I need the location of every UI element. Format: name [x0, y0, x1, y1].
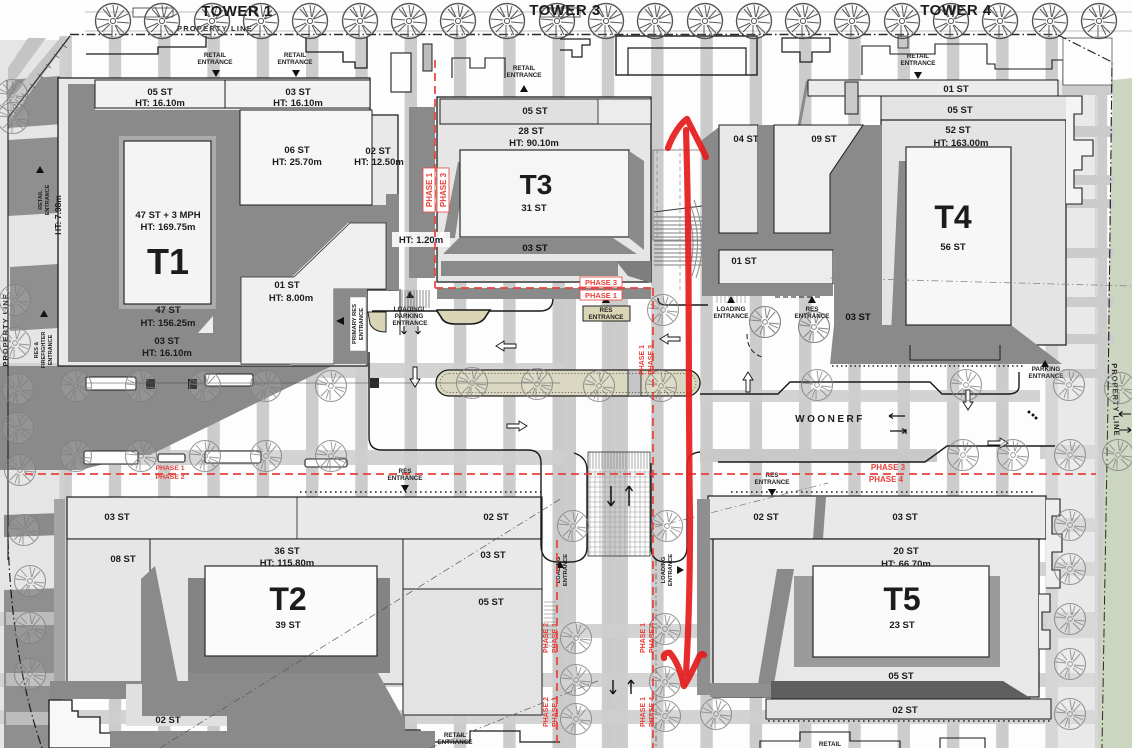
- svg-text:56 ST: 56 ST: [940, 242, 966, 253]
- svg-text:RETAIL: RETAIL: [284, 52, 306, 59]
- svg-text:02 ST: 02 ST: [155, 715, 181, 726]
- svg-text:08 ST: 08 ST: [110, 554, 136, 565]
- svg-text:ENTRANCE: ENTRANCE: [45, 184, 51, 215]
- svg-text:HT: 8.00m: HT: 8.00m: [269, 293, 313, 304]
- svg-text:WOONERF: WOONERF: [795, 414, 865, 425]
- svg-text:ENTRANCE: ENTRANCE: [563, 554, 569, 586]
- svg-text:ENTRANCE: ENTRANCE: [198, 59, 233, 66]
- svg-text:05 ST: 05 ST: [888, 671, 914, 682]
- svg-text:02 ST: 02 ST: [365, 146, 391, 157]
- svg-text:ENTRANCE: ENTRANCE: [393, 320, 428, 327]
- svg-text:39 ST: 39 ST: [275, 620, 301, 631]
- svg-text:PHASE 3: PHASE 3: [439, 172, 448, 207]
- svg-text:RES: RES: [600, 307, 613, 314]
- svg-text:52 ST: 52 ST: [945, 125, 971, 136]
- svg-text:ENTRANCE: ENTRANCE: [901, 60, 936, 67]
- svg-text:ENTRANCE: ENTRANCE: [795, 313, 830, 320]
- svg-text:01 ST: 01 ST: [943, 84, 969, 95]
- svg-text:05 ST: 05 ST: [522, 106, 548, 117]
- svg-text:RETAIL: RETAIL: [819, 741, 841, 748]
- svg-text:28 ST: 28 ST: [518, 126, 544, 137]
- svg-text:HT: 7.98m: HT: 7.98m: [53, 195, 63, 235]
- svg-text:HT: 1.20m: HT: 1.20m: [399, 235, 443, 246]
- svg-text:HT: 12.50m: HT: 12.50m: [354, 157, 404, 168]
- svg-text:HT: 156.25m: HT: 156.25m: [141, 318, 196, 329]
- svg-text:RETAIL: RETAIL: [444, 732, 466, 739]
- svg-text:03 ST: 03 ST: [285, 87, 311, 98]
- svg-text:ENTRANCE: ENTRANCE: [48, 334, 54, 365]
- svg-text:02 ST: 02 ST: [483, 512, 509, 523]
- svg-text:06 ST: 06 ST: [284, 145, 310, 156]
- svg-text:RES &: RES &: [34, 342, 40, 359]
- svg-text:PHASE 2: PHASE 2: [155, 474, 184, 481]
- svg-text:20 ST: 20 ST: [893, 546, 919, 557]
- svg-text:FIREFIGHTER: FIREFIGHTER: [41, 332, 47, 369]
- svg-text:03 ST: 03 ST: [892, 512, 918, 523]
- svg-text:RETAIL: RETAIL: [513, 65, 535, 72]
- svg-text:HT: 169.75m: HT: 169.75m: [141, 222, 196, 233]
- svg-text:T3: T3: [520, 169, 553, 200]
- svg-text:03 ST: 03 ST: [104, 512, 130, 523]
- svg-text:PARKING: PARKING: [395, 313, 424, 320]
- svg-text:PHASE 1: PHASE 1: [552, 697, 559, 727]
- svg-text:TOWER 1: TOWER 1: [201, 3, 273, 20]
- svg-text:09 ST: 09 ST: [811, 134, 837, 145]
- svg-text:T2: T2: [269, 581, 306, 617]
- svg-text:PHASE 4: PHASE 4: [649, 697, 656, 727]
- svg-text:PARKING: PARKING: [1032, 366, 1061, 373]
- svg-text:03 ST: 03 ST: [154, 336, 180, 347]
- svg-text:01 ST: 01 ST: [731, 256, 757, 267]
- svg-text:03 ST: 03 ST: [480, 550, 506, 561]
- svg-text:47 ST: 47 ST: [155, 305, 181, 316]
- svg-text:HT: 90.10m: HT: 90.10m: [509, 138, 559, 149]
- svg-text:HT: 16.10m: HT: 16.10m: [273, 98, 323, 109]
- svg-text:ENTRANCE: ENTRANCE: [714, 313, 749, 320]
- svg-text:ENTRANCE: ENTRANCE: [388, 475, 423, 482]
- svg-text:RETAIL: RETAIL: [38, 190, 44, 210]
- svg-text:ENTRANCE: ENTRANCE: [438, 739, 473, 746]
- svg-text:PHASE 1: PHASE 1: [639, 345, 646, 375]
- svg-text:HT: 16.10m: HT: 16.10m: [135, 98, 185, 109]
- svg-text:47 ST + 3 MPH: 47 ST + 3 MPH: [135, 210, 200, 221]
- svg-text:02 ST: 02 ST: [753, 512, 779, 523]
- svg-text:PHASE 2: PHASE 2: [543, 623, 550, 653]
- svg-text:LOADING: LOADING: [716, 306, 745, 313]
- svg-text:PHASE 1: PHASE 1: [425, 172, 434, 207]
- svg-text:PHASE 4: PHASE 4: [649, 623, 656, 653]
- svg-text:31 ST: 31 ST: [521, 203, 547, 214]
- svg-text:23 ST: 23 ST: [889, 620, 915, 631]
- svg-text:03 ST: 03 ST: [845, 312, 871, 323]
- svg-text:36 ST: 36 ST: [274, 546, 300, 557]
- svg-text:ENTRANCE: ENTRANCE: [589, 314, 624, 321]
- svg-text:05 ST: 05 ST: [947, 105, 973, 116]
- svg-text:ENTRANCE: ENTRANCE: [668, 554, 674, 586]
- svg-text:RETAIL: RETAIL: [204, 52, 226, 59]
- svg-text:ENTRANCE: ENTRANCE: [755, 479, 790, 486]
- svg-text:T5: T5: [883, 581, 920, 617]
- svg-text:PHASE 3: PHASE 3: [585, 278, 617, 287]
- svg-text:HT: 16.10m: HT: 16.10m: [142, 348, 192, 359]
- svg-text:ENTRANCE: ENTRANCE: [359, 308, 365, 340]
- svg-text:04 ST: 04 ST: [733, 134, 759, 145]
- svg-text:T4: T4: [934, 199, 972, 235]
- svg-text:LOADING: LOADING: [661, 556, 667, 583]
- svg-text:01 ST: 01 ST: [274, 280, 300, 291]
- svg-text:RES: RES: [766, 472, 779, 479]
- svg-text:PHASE 1: PHASE 1: [552, 623, 559, 653]
- svg-text:TOWER 4: TOWER 4: [920, 2, 992, 19]
- svg-text:PHASE 3: PHASE 3: [648, 345, 655, 375]
- svg-text:PHASE 4: PHASE 4: [869, 475, 904, 484]
- svg-text:PRIMARY RES: PRIMARY RES: [352, 304, 358, 344]
- svg-text:03 ST: 03 ST: [522, 243, 548, 254]
- svg-text:PHASE 2: PHASE 2: [543, 697, 550, 727]
- svg-text:T1: T1: [147, 241, 189, 282]
- svg-text:PHASE 1: PHASE 1: [640, 623, 647, 653]
- svg-text:05 ST: 05 ST: [147, 87, 173, 98]
- svg-text:RES: RES: [806, 306, 819, 313]
- svg-text:ENTRANCE: ENTRANCE: [278, 59, 313, 66]
- svg-text:PHASE 1: PHASE 1: [155, 465, 184, 472]
- svg-text:PHASE 1: PHASE 1: [585, 291, 617, 300]
- svg-text:PHASE 1: PHASE 1: [640, 697, 647, 727]
- svg-text:05 ST: 05 ST: [478, 597, 504, 608]
- svg-text:TOWER 3: TOWER 3: [529, 2, 601, 19]
- svg-text:HT: 25.70m: HT: 25.70m: [272, 157, 322, 168]
- svg-text:PHASE 3: PHASE 3: [871, 463, 906, 472]
- svg-text:02 ST: 02 ST: [892, 705, 918, 716]
- svg-text:ENTRANCE: ENTRANCE: [507, 72, 542, 79]
